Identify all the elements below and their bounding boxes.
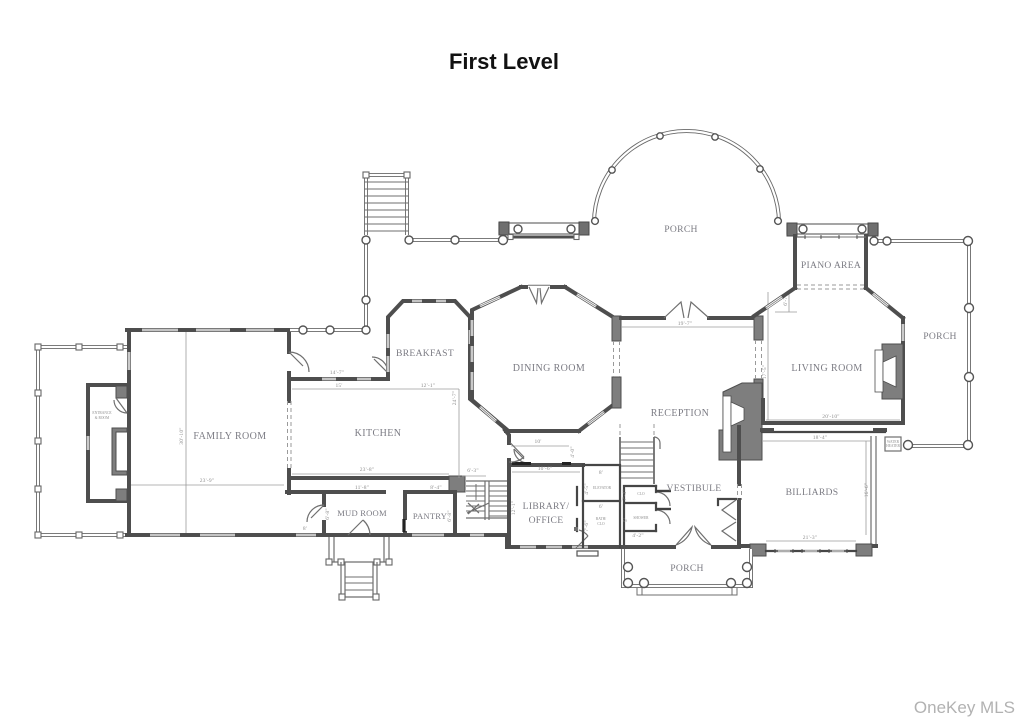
svg-text:12'-1": 12'-1" <box>421 383 436 389</box>
svg-text:11'-8": 11'-8" <box>355 485 369 491</box>
svg-text:HEATER: HEATER <box>886 444 900 448</box>
svg-text:10'-6": 10'-6" <box>538 466 553 472</box>
svg-text:First Level: First Level <box>449 49 559 74</box>
svg-text:4'-2": 4'-2" <box>632 533 644 539</box>
svg-text:BREAKFAST: BREAKFAST <box>396 348 454 359</box>
svg-text:23'-8": 23'-8" <box>360 467 375 473</box>
svg-text:BILLIARDS: BILLIARDS <box>786 487 839 498</box>
svg-text:& ROOM: & ROOM <box>95 416 110 420</box>
svg-text:5': 5' <box>623 518 629 522</box>
svg-text:18'-4": 18'-4" <box>813 435 828 441</box>
svg-text:8': 8' <box>599 470 603 476</box>
svg-text:PIANO AREA: PIANO AREA <box>801 260 861 271</box>
svg-text:PORCH: PORCH <box>670 563 704 574</box>
svg-text:24'-7": 24'-7" <box>452 391 458 406</box>
svg-text:CLO: CLO <box>637 492 645 496</box>
svg-text:ELEVATOR: ELEVATOR <box>593 486 612 490</box>
svg-text:VESTIBULE: VESTIBULE <box>667 483 722 494</box>
svg-text:6'-3": 6'-3" <box>467 468 479 474</box>
svg-text:6': 6' <box>599 504 603 510</box>
svg-text:LIVING ROOM: LIVING ROOM <box>791 363 862 374</box>
svg-text:RECEPTION: RECEPTION <box>651 408 710 419</box>
svg-text:PORCH: PORCH <box>664 224 698 235</box>
svg-text:8': 8' <box>303 526 307 532</box>
svg-text:16'-6": 16'-6" <box>864 483 870 498</box>
svg-text:19'-7": 19'-7" <box>678 321 693 327</box>
svg-text:14'-7": 14'-7" <box>330 370 345 376</box>
svg-text:LIBRARY/: LIBRARY/ <box>523 501 570 512</box>
svg-text:ENTRANCE: ENTRANCE <box>92 411 112 415</box>
svg-text:DINING ROOM: DINING ROOM <box>513 363 585 374</box>
svg-text:7'-6": 7'-6" <box>584 520 590 532</box>
svg-text:6'-8": 6'-8" <box>447 510 453 522</box>
svg-text:OFFICE: OFFICE <box>529 515 564 526</box>
svg-text:20'-10": 20'-10" <box>822 414 839 420</box>
svg-text:23'-9": 23'-9" <box>200 478 215 484</box>
svg-text:BATH/: BATH/ <box>596 517 606 521</box>
svg-text:21'-3": 21'-3" <box>803 535 818 541</box>
svg-text:KITCHEN: KITCHEN <box>355 428 402 439</box>
svg-text:12'-1": 12'-1" <box>511 501 517 516</box>
svg-text:30'-10": 30'-10" <box>179 427 185 444</box>
svg-text:FAMILY ROOM: FAMILY ROOM <box>193 431 266 442</box>
svg-text:6'-8": 6'-8" <box>325 508 331 520</box>
svg-text:7'-4": 7'-4" <box>622 489 628 501</box>
svg-text:4'-5": 4'-5" <box>584 483 590 495</box>
svg-text:SHOWER: SHOWER <box>633 516 649 520</box>
svg-text:15': 15' <box>335 383 342 389</box>
svg-text:4'-0": 4'-0" <box>570 446 576 458</box>
svg-text:PORCH: PORCH <box>923 331 957 342</box>
svg-text:17'-5": 17'-5" <box>762 365 768 380</box>
svg-text:MUD ROOM: MUD ROOM <box>337 508 387 518</box>
svg-text:8'-4": 8'-4" <box>430 485 442 491</box>
svg-text:10': 10' <box>534 439 541 445</box>
svg-text:PANTRY: PANTRY <box>413 511 447 521</box>
svg-text:CLO: CLO <box>597 522 605 526</box>
svg-text:OneKey MLS: OneKey MLS <box>914 698 1015 717</box>
